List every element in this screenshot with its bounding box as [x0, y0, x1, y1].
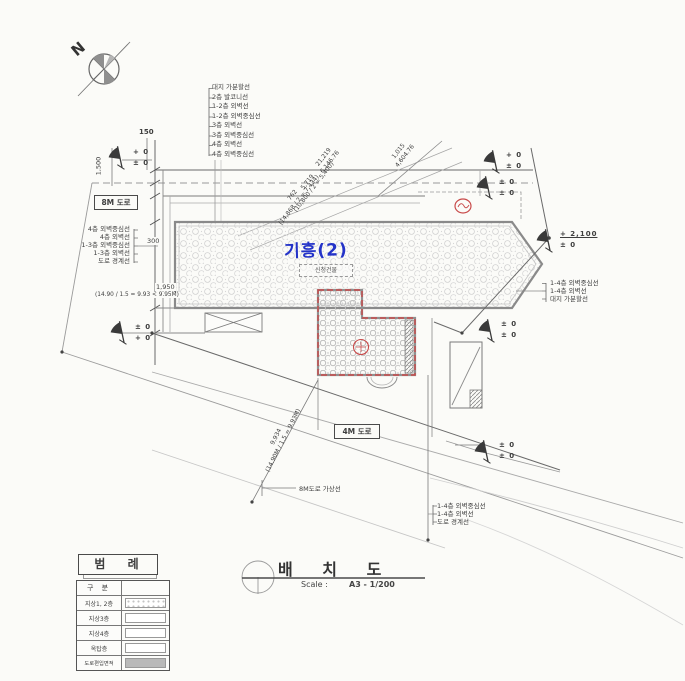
level-mark-left-mid: ± 0+ 0: [135, 322, 151, 343]
legend-table: 구 분 지상1, 2층 지상3층 지상4층 옥탑층 도로편입면적: [76, 580, 170, 671]
legend-row: 지상4층: [77, 626, 169, 641]
dim-1950: 1,950: [155, 283, 176, 291]
callout: 1-3층 외벽선: [46, 249, 130, 257]
callout-stack-left: 4층 외벽중심선 4층 외벽선 1-3층 외벽중심선 1-3층 외벽선 도로 경…: [46, 225, 130, 265]
callout-stack-top: 대지 가분할선 2층 발코니선 1-2층 외벽선 1-2층 외벽중심선 3층 외…: [212, 83, 261, 159]
legend-swatch-gray: [125, 658, 166, 668]
callout: 4층 외벽선: [212, 140, 261, 150]
parking-stall-symbol: [450, 342, 482, 408]
legend-row: 옥탑층: [77, 641, 169, 656]
callout: 1-4층 외벽선: [550, 287, 599, 295]
dim-calc-left: (14.90 / 1.5 = 9.93 < 9.95M): [94, 292, 180, 298]
callout: 대지 가분할선: [550, 295, 599, 303]
level-mark-bottom: ± 0± 0: [499, 440, 515, 461]
road-label-4m: 4M 도로: [334, 424, 380, 439]
legend-row: 지상1, 2층: [77, 596, 169, 611]
red-check-stamp-icon: [455, 199, 471, 213]
level-mark-top-right-2: ± 0± 0: [499, 177, 515, 198]
callout: 4층 외벽선: [46, 233, 130, 241]
level-mark-right: + 2,100± 0: [560, 229, 597, 250]
legend-swatch-plain: [125, 613, 166, 623]
callout: 3층 외벽선: [212, 121, 261, 131]
legend-row: 도로편입면적: [77, 656, 169, 670]
legend-row: 지상3층: [77, 611, 169, 626]
scale-value: A3 - 1/200: [349, 580, 395, 589]
callout: 3층 외벽중심선: [212, 131, 261, 141]
callout: 대지 가분할선: [212, 83, 261, 93]
dim-300: 300: [146, 237, 160, 245]
dim-150: 150: [138, 128, 155, 136]
callout: 도로 경계선: [46, 257, 130, 265]
callout: 1-4층 외벽중심선: [550, 279, 599, 287]
callout-stack-bottom-right: 1-4층 외벽중심선 1-4층 외벽선 도로 경계선: [437, 502, 486, 526]
legend-header: 구 분: [77, 581, 122, 595]
callout: 1-2층 외벽선: [212, 102, 261, 112]
callout: 1-4층 외벽선: [437, 510, 486, 518]
building-sub-label: 신청건물: [299, 264, 353, 277]
dim-1500: 1,500: [94, 156, 102, 177]
callout: 2층 발코니선: [212, 93, 261, 103]
callout: 1-2층 외벽중심선: [212, 112, 261, 122]
scale-label: Scale :: [301, 580, 328, 589]
road-label-8m: 8M 도로: [94, 195, 138, 210]
building-label: 기흥(2): [284, 235, 348, 262]
crossed-area-symbol: [205, 313, 262, 332]
callout-stack-right: 1-4층 외벽중심선 1-4층 외벽선 대지 가분할선: [550, 279, 599, 302]
level-mark-top-right-1: + 0± 0: [506, 150, 522, 171]
callout: 4층 외벽중심선: [212, 150, 261, 160]
callout: 1-4층 외벽중심선: [437, 502, 486, 510]
level-mark-top-left: + 0± 0: [133, 147, 149, 168]
site-plan-sheet: { "drawing": { "north_label": "N", "buil…: [0, 0, 685, 681]
legend-swatch-plain: [125, 628, 166, 638]
legend-header-row: 구 분: [77, 581, 169, 596]
sheet-title: 배 치 도: [278, 556, 393, 580]
callout: 도로 경계선: [437, 518, 486, 526]
road-label-8m-virtual: 8M도로 가상선: [299, 485, 341, 494]
callout: 4층 외벽중심선: [46, 225, 130, 233]
callout: 1-3층 외벽중심선: [46, 241, 130, 249]
legend-swatch-dots: [125, 598, 166, 608]
legend-title: 범 례: [78, 554, 158, 575]
level-mark-right-mid: ± 0± 0: [501, 319, 517, 340]
legend-swatch-plain: [125, 643, 166, 653]
